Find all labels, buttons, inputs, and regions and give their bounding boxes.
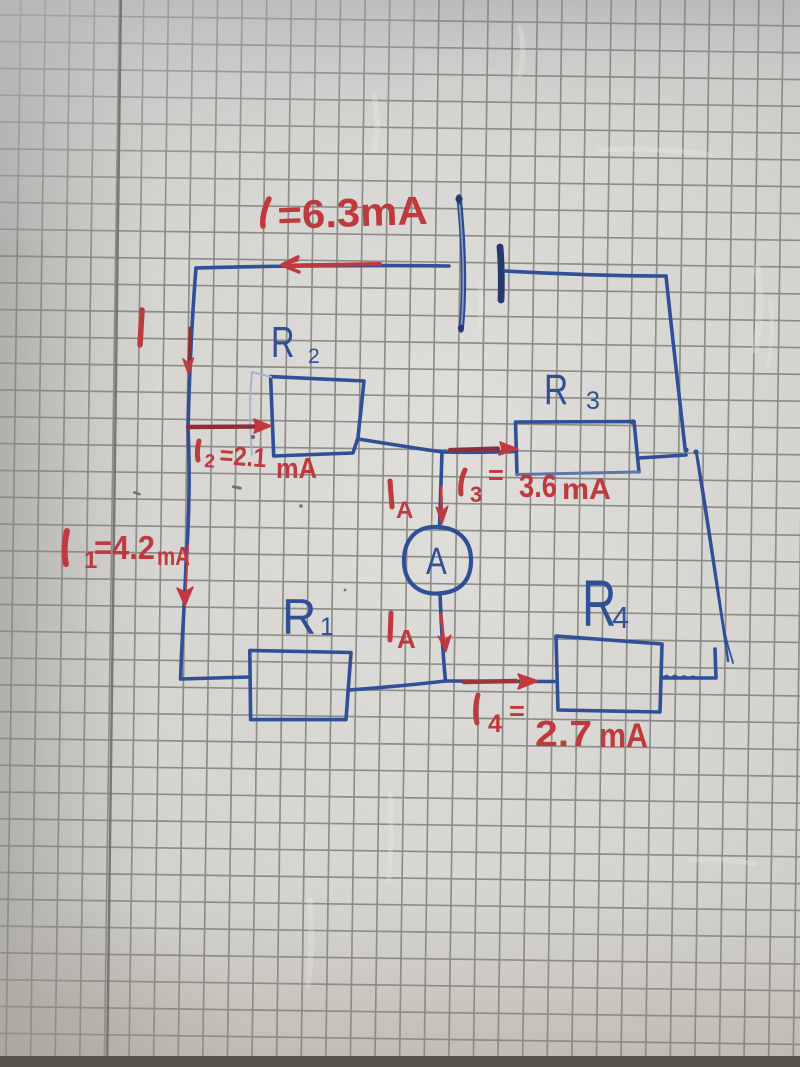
svg-text:R: R <box>282 590 316 645</box>
svg-text:4: 4 <box>488 710 502 738</box>
svg-text:2: 2 <box>204 451 216 473</box>
svg-text:=: = <box>509 696 525 726</box>
svg-text:R: R <box>271 318 295 367</box>
svg-text:mA: mA <box>276 453 317 485</box>
svg-text:A: A <box>397 624 416 654</box>
svg-text:A: A <box>396 497 413 524</box>
svg-text:R: R <box>544 366 568 414</box>
svg-text:A: A <box>426 541 448 583</box>
svg-text:mA: mA <box>562 473 611 506</box>
svg-text:=: = <box>488 460 504 490</box>
svg-text:4: 4 <box>612 600 629 635</box>
svg-text:3: 3 <box>586 387 600 415</box>
svg-text:3.6: 3.6 <box>519 468 557 504</box>
svg-text:=2.1: =2.1 <box>219 440 268 473</box>
svg-text:2.7: 2.7 <box>535 713 592 754</box>
svg-text:3: 3 <box>470 482 482 507</box>
svg-text:2: 2 <box>308 345 320 368</box>
svg-text:mA: mA <box>599 717 648 755</box>
svg-text:=4.2: =4.2 <box>94 529 155 566</box>
svg-text:=6.3mA: =6.3mA <box>277 189 428 238</box>
svg-text:1: 1 <box>320 613 334 641</box>
svg-text:mA: mA <box>157 541 190 571</box>
